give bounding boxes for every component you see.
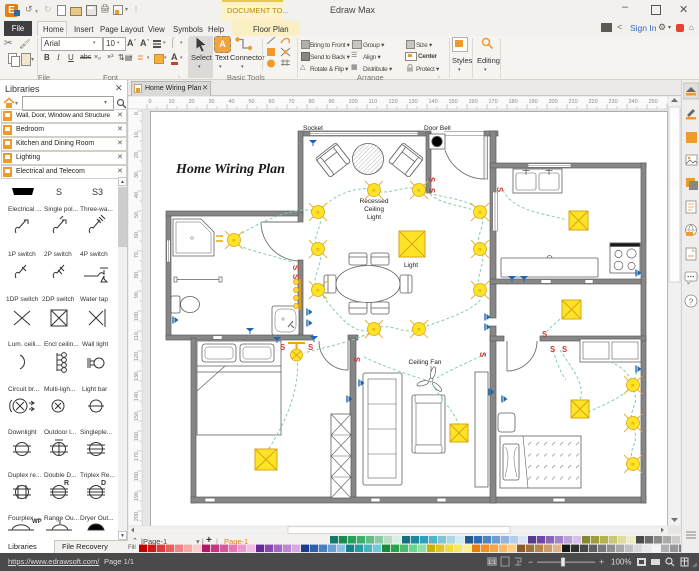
svg-text:Fourplex ...: Fourplex ...	[8, 515, 41, 522]
svg-text:30: 30	[134, 172, 140, 178]
svg-text:Recessed: Recessed	[360, 198, 389, 205]
svg-text:90: 90	[329, 99, 335, 105]
svg-text:Home Wiring Plan: Home Wiring Plan	[175, 162, 285, 177]
svg-text:Duplex re...: Duplex re...	[8, 472, 41, 479]
svg-text:Lum. ceili...: Lum. ceili...	[8, 341, 41, 348]
svg-text:140: 140	[134, 392, 140, 401]
svg-text:Multi-ligh...: Multi-ligh...	[44, 386, 76, 393]
svg-text:180: 180	[134, 472, 140, 481]
svg-text:20: 20	[134, 152, 140, 158]
svg-text:2P switch: 2P switch	[44, 251, 72, 258]
svg-text:S: S	[562, 345, 567, 354]
svg-text:S: S	[352, 357, 361, 362]
svg-text:230: 230	[609, 99, 618, 105]
svg-text:Single pol...: Single pol...	[44, 206, 78, 213]
svg-text:Triplex Re...: Triplex Re...	[80, 472, 115, 479]
svg-text:60: 60	[269, 99, 275, 105]
svg-text:S: S	[550, 345, 555, 354]
svg-text:100%: 100%	[611, 558, 631, 567]
svg-text:170: 170	[134, 452, 140, 461]
svg-text:160: 160	[469, 99, 478, 105]
svg-text:150: 150	[449, 99, 458, 105]
svg-text:30: 30	[209, 99, 215, 105]
svg-text:Light: Light	[367, 214, 381, 221]
svg-text:1:1: 1:1	[488, 560, 497, 566]
svg-text:1DP switch: 1DP switch	[6, 296, 39, 303]
svg-text:Door Bell: Door Bell	[424, 125, 451, 132]
svg-text:S: S	[427, 177, 436, 182]
svg-text:170: 170	[489, 99, 498, 105]
svg-text:1P switch: 1P switch	[8, 251, 36, 258]
svg-text:+: +	[599, 557, 604, 567]
svg-text:10: 10	[134, 132, 140, 138]
svg-text:Range Ou...: Range Ou...	[44, 515, 79, 522]
svg-text:Water tap: Water tap	[80, 296, 108, 303]
svg-text:150: 150	[134, 412, 140, 421]
svg-text:0: 0	[134, 112, 140, 115]
svg-text:Electrical ...: Electrical ...	[8, 206, 42, 213]
svg-text:40: 40	[134, 192, 140, 198]
svg-text:−: −	[528, 557, 533, 567]
svg-text:100: 100	[134, 312, 140, 321]
svg-text:S: S	[478, 352, 487, 357]
svg-text:90: 90	[134, 292, 140, 298]
svg-text:Dryer Out...: Dryer Out...	[80, 515, 114, 522]
svg-text:200: 200	[549, 99, 558, 105]
svg-text:70: 70	[289, 99, 295, 105]
svg-text:10: 10	[169, 99, 175, 105]
svg-text:120: 120	[134, 352, 140, 361]
svg-text:70: 70	[134, 252, 140, 258]
svg-text:140: 140	[429, 99, 438, 105]
svg-text:S: S	[56, 187, 62, 197]
svg-text:Ceiling: Ceiling	[364, 206, 384, 213]
svg-text:210: 210	[569, 99, 578, 105]
svg-text:R: R	[64, 480, 69, 487]
svg-text:120: 120	[389, 99, 398, 105]
svg-text:S: S	[495, 187, 504, 192]
svg-text:20: 20	[189, 99, 195, 105]
svg-text:S: S	[291, 274, 300, 279]
svg-text:200: 200	[134, 512, 140, 521]
svg-text:110: 110	[134, 332, 140, 341]
svg-text:Outdoor l...: Outdoor l...	[44, 429, 76, 436]
svg-text:4P switch: 4P switch	[80, 251, 108, 258]
svg-text:?: ?	[689, 298, 694, 307]
svg-text:Encl ceilin...: Encl ceilin...	[44, 341, 79, 348]
svg-text:S: S	[280, 343, 285, 352]
svg-text:50: 50	[249, 99, 255, 105]
svg-text:240: 240	[629, 99, 638, 105]
svg-text:110: 110	[369, 99, 378, 105]
svg-text:40: 40	[229, 99, 235, 105]
svg-text:60: 60	[134, 232, 140, 238]
svg-text:0: 0	[149, 99, 152, 105]
svg-text:S: S	[427, 188, 436, 193]
svg-text:S: S	[291, 265, 300, 270]
svg-text:Three-wa...: Three-wa...	[80, 206, 113, 213]
svg-text:Wall light: Wall light	[82, 341, 108, 348]
svg-text:Singleple...: Singleple...	[80, 429, 112, 436]
svg-text:80: 80	[309, 99, 315, 105]
svg-text:130: 130	[134, 372, 140, 381]
svg-text:Circuit br...: Circuit br...	[8, 386, 39, 393]
svg-text:130: 130	[409, 99, 418, 105]
svg-text:Socket: Socket	[303, 125, 323, 132]
svg-text:220: 220	[589, 99, 598, 105]
svg-text:80: 80	[134, 272, 140, 278]
svg-text:S3: S3	[92, 187, 103, 197]
svg-text:D: D	[101, 480, 106, 487]
svg-text:160: 160	[134, 432, 140, 441]
svg-text:2DP switch: 2DP switch	[42, 296, 75, 303]
svg-text:Ceiling Fan: Ceiling Fan	[409, 359, 442, 366]
svg-text:Downlight: Downlight	[8, 429, 37, 436]
svg-text:Light: Light	[404, 262, 418, 269]
svg-text:180: 180	[509, 99, 518, 105]
svg-text:S: S	[542, 330, 547, 339]
svg-text:Light bar: Light bar	[82, 386, 108, 393]
svg-text:50: 50	[134, 212, 140, 218]
svg-text:250: 250	[649, 99, 658, 105]
svg-text:190: 190	[529, 99, 538, 105]
svg-text:S: S	[308, 343, 313, 352]
svg-text:Double D...: Double D...	[44, 472, 77, 479]
svg-text:190: 190	[134, 492, 140, 501]
svg-text:100: 100	[349, 99, 358, 105]
